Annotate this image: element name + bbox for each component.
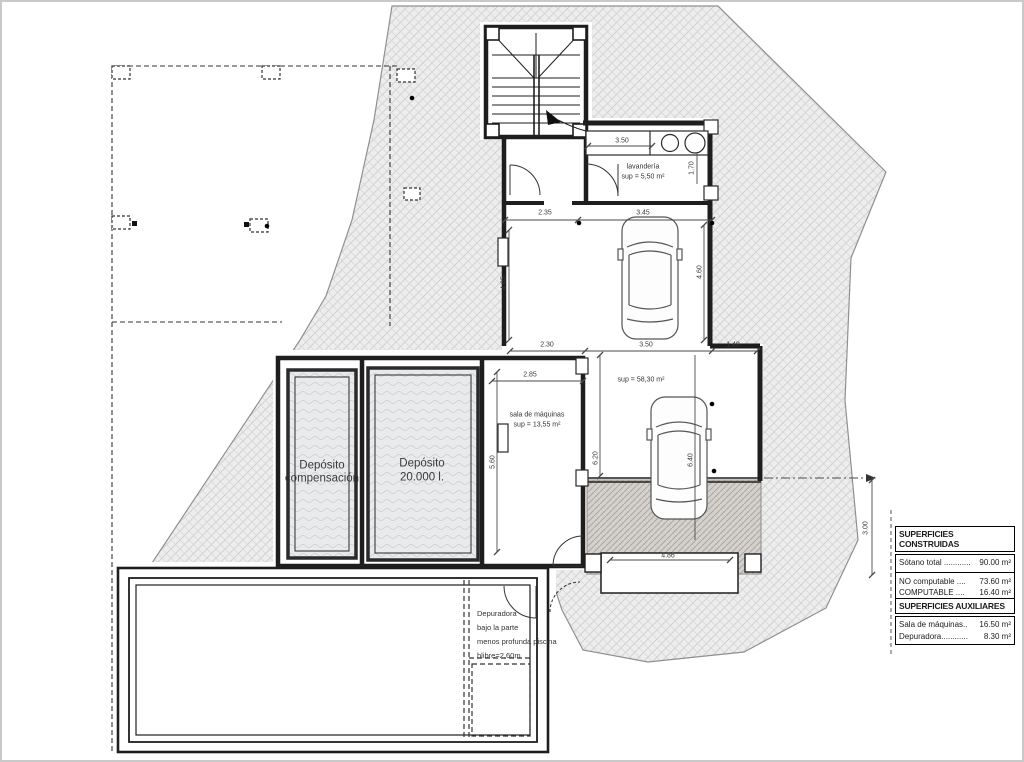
row-value: 90.00 m² <box>979 557 1011 569</box>
label-deposito-compensacion-2: compensación <box>285 473 359 486</box>
label-deposito-20000-2: 20.000 l. <box>400 472 444 485</box>
row-label: NO computable .... <box>899 576 966 588</box>
depuradora-note-line1: Depuradora <box>477 607 557 621</box>
row-value: 8.30 m² <box>984 631 1011 643</box>
label-garaje-area: sup = 58,30 m² <box>618 377 665 384</box>
label-lavanderia: lavandería <box>627 164 660 171</box>
label-lavanderia-area: sup = 5,50 m² <box>622 174 665 181</box>
table-row: Sótano total ............ 90.00 m² <box>899 557 1011 569</box>
table-separator <box>896 572 1014 573</box>
row-label: Depuradora............ <box>899 631 968 643</box>
depuradora-note: Depuradora bajo la parte menos profunda … <box>477 607 557 663</box>
row-value: 16.40 m² <box>979 587 1011 599</box>
dim-ramp-height: 3.00 <box>863 521 870 535</box>
row-value: 73.60 m² <box>979 576 1011 588</box>
car-2 <box>647 397 711 519</box>
dim-mid-center: 3.50 <box>639 342 653 349</box>
dim-top-right: 3.45 <box>636 210 650 217</box>
label-deposito-compensacion-1: Depósito <box>299 460 344 473</box>
dim-drain-width: 4.86 <box>661 553 675 560</box>
table-row: Sala de máquinas.. 16.50 m² <box>899 619 1011 631</box>
depuradora-note-line4: hlibre=2,60m <box>477 649 557 663</box>
dim-garage-right-height: 4.60 <box>697 265 704 279</box>
auxiliares-table-title: SUPERFICIES AUXILIARES <box>895 598 1015 614</box>
label-sala-maquinas-area: sup = 13,55 m² <box>514 422 561 429</box>
table-row: NO computable .... 73.60 m² <box>899 576 1011 588</box>
dim-mid-left: 2.30 <box>540 342 554 349</box>
dim-lower-left-height: 6.20 <box>593 451 600 465</box>
dim-sala-height: 5.60 <box>490 455 497 469</box>
dim-garage-left-height: 4.65 <box>501 276 508 290</box>
dim-mid-right: 1.40 <box>726 342 740 349</box>
construidas-table-title: SUPERFICIES CONSTRUIDAS <box>895 526 1015 552</box>
floor-plan-page: Depósito compensación Depósito 20.000 l.… <box>0 0 1024 762</box>
dim-lavanderia-width: 3.50 <box>615 138 629 145</box>
row-label: COMPUTABLE .... <box>899 587 965 599</box>
superficies-construidas-table: SUPERFICIES CONSTRUIDAS Sótano total ...… <box>895 526 1015 602</box>
table-row: COMPUTABLE .... 16.40 m² <box>899 587 1011 599</box>
row-label: Sótano total ............ <box>899 557 971 569</box>
dim-lavanderia-height: 1.70 <box>689 161 696 175</box>
car-1 <box>618 217 682 339</box>
laundry-counter <box>586 131 708 155</box>
table-row: Depuradora............ 8.30 m² <box>899 631 1011 643</box>
row-label: Sala de máquinas.. <box>899 619 968 631</box>
dim-lower-right-height: 6.40 <box>688 453 695 467</box>
label-sala-maquinas: sala de máquinas <box>510 412 565 419</box>
dim-top-left: 2.35 <box>538 210 552 217</box>
row-value: 16.50 m² <box>979 619 1011 631</box>
superficies-auxiliares-table: SUPERFICIES AUXILIARES Sala de máquinas.… <box>895 598 1015 645</box>
depuradora-note-line3: menos profunda piscina <box>477 635 557 649</box>
label-deposito-20000-1: Depósito <box>399 458 444 471</box>
dim-sala-width: 2.85 <box>523 372 537 379</box>
depuradora-note-line2: bajo la parte <box>477 621 557 635</box>
